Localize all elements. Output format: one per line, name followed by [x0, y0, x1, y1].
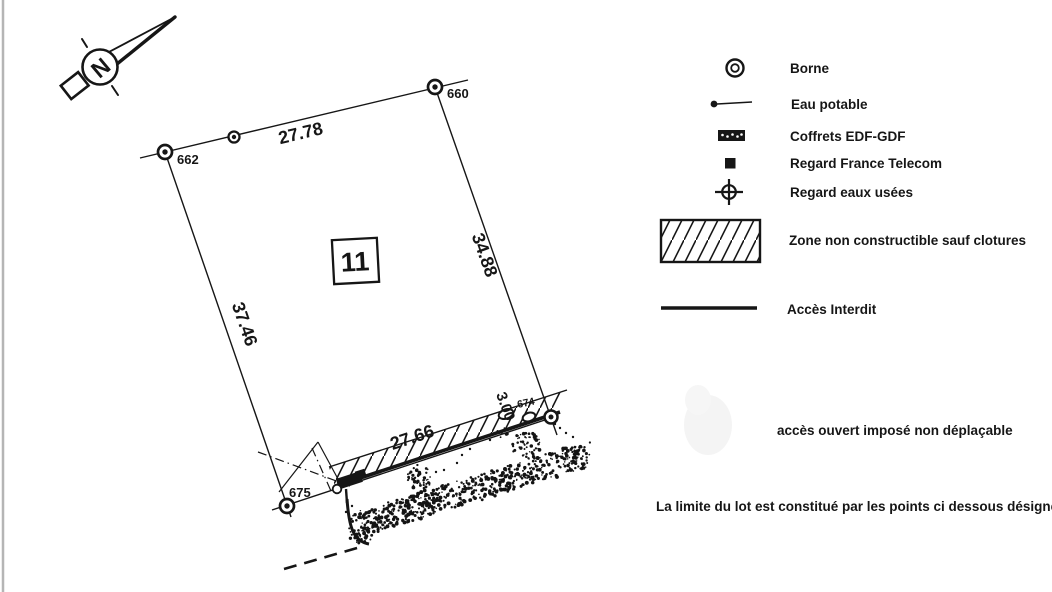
eau-potable-start-marker: [333, 485, 342, 494]
legend-label-regard-telecom: Regard France Telecom: [790, 156, 942, 171]
legend-label-zone: Zone non constructible sauf clotures: [789, 233, 1026, 248]
borne-675: [280, 499, 294, 513]
borne-mid-top: [229, 132, 240, 143]
borne-icon: [727, 60, 744, 77]
note-limite-lot: La limite du lot est constitué par les p…: [656, 499, 1052, 514]
zone-hatch-swatch-icon: [661, 220, 760, 262]
legend-label-borne: Borne: [790, 61, 829, 76]
scanned-plan-page: N: [0, 0, 1052, 592]
parcel-number: 11: [340, 246, 370, 277]
coffret-edf-gdf-icon: [718, 130, 745, 141]
site-plan-canvas: N: [0, 0, 1052, 592]
point-label-662: 662: [177, 152, 199, 167]
note-acces-ouvert: accès ouvert imposé non déplaçable: [777, 423, 1013, 438]
legend-label-regard-eaux-usees: Regard eaux usées: [790, 185, 913, 200]
regard-telecom-icon: [725, 158, 736, 169]
legend-label-eau-potable: Eau potable: [791, 97, 868, 112]
point-label-660: 660: [447, 86, 469, 101]
borne-674: [545, 411, 558, 424]
borne-660: [428, 80, 442, 94]
legend-label-acces-interdit: Accès Interdit: [787, 302, 877, 317]
parcel-number-box: 11: [332, 238, 379, 284]
legend-label-coffrets: Coffrets EDF-GDF: [790, 129, 906, 144]
point-label-675: 675: [289, 485, 311, 500]
borne-662: [158, 145, 172, 159]
